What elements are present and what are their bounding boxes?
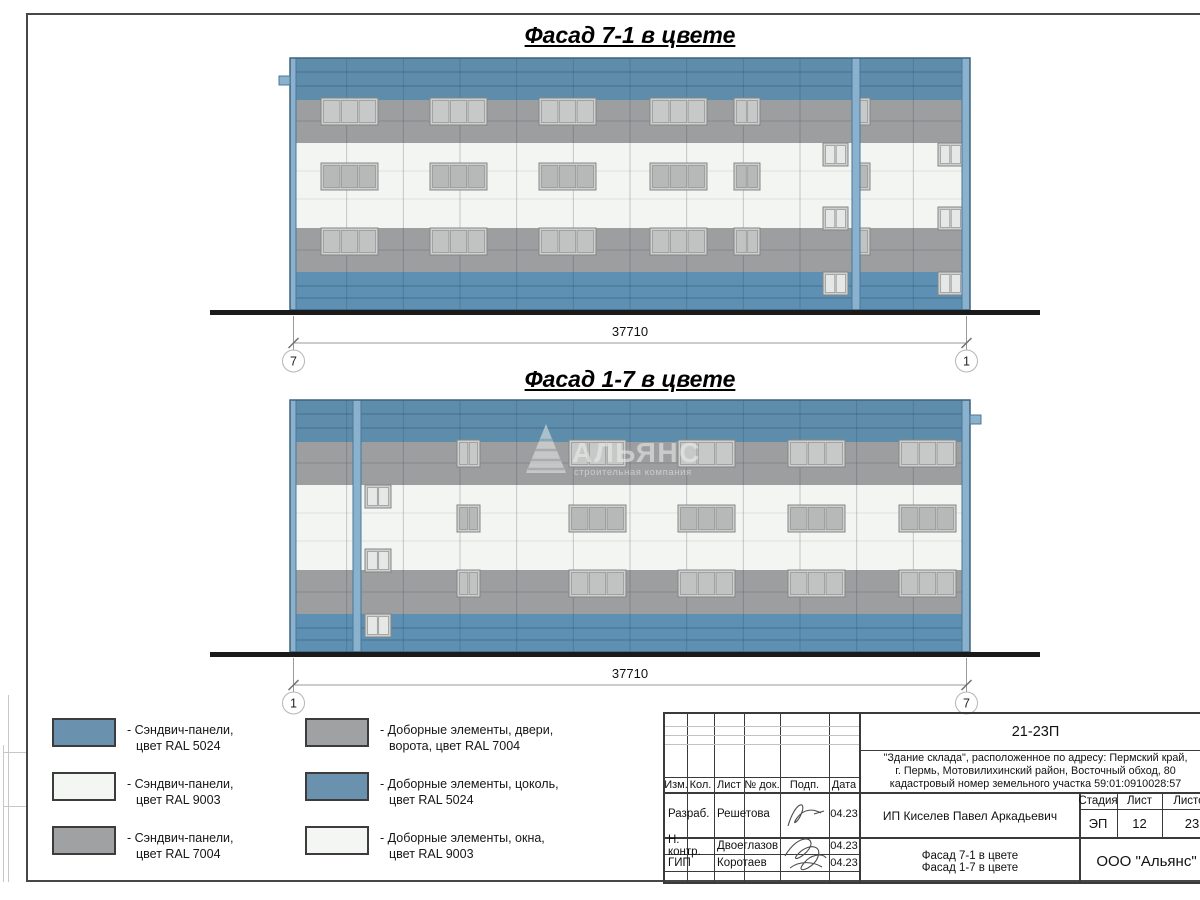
legend-label: - Сэндвич-панели,	[127, 830, 233, 846]
legend-label-line2: цвет RAL 9003	[127, 792, 233, 808]
dimension-label: 37710	[612, 324, 648, 339]
tb-col-doc: № док.	[744, 777, 780, 792]
legend-swatch-gray	[52, 826, 116, 855]
margin-line-horizontal-1	[3, 752, 26, 753]
tb-sheets-value: 23	[1162, 809, 1200, 837]
signature-gip	[785, 839, 826, 870]
tb-sheet-label: Лист	[1117, 792, 1162, 809]
legend-label-line2: цвет RAL 5024	[127, 738, 233, 754]
legend-label: - Сэндвич-панели,	[127, 722, 233, 738]
grid-axis-bubble: 7	[290, 355, 297, 369]
tb-doc-title-line2: Фасад 1-7 в цвете	[922, 862, 1018, 874]
legend-label-line2: цвет RAL 5024	[380, 792, 559, 808]
margin-line-horizontal-2	[3, 806, 26, 807]
tb-name-reshetova: Решетова	[717, 802, 779, 826]
tb-doc-number: 21-23П	[859, 714, 1200, 750]
legend-label: - Доборные элементы, окна,	[380, 830, 545, 846]
facade-elevation-svg: 3771071	[180, 55, 1060, 375]
tb-stage-value: ЭП	[1079, 809, 1117, 837]
title-block: Изм. Кол. Лист № док. Подп. Дата Разраб.…	[663, 712, 1200, 884]
grid-axis-bubble: 7	[963, 697, 970, 711]
tb-client: ИП Киселев Павел Аркадьевич	[861, 794, 1079, 837]
facade-7-1-drawing: 3771071	[180, 55, 1060, 375]
margin-line-vertical-inner	[8, 695, 9, 882]
legend-swatch-blue	[52, 718, 116, 747]
tb-date-2: 04.23	[829, 837, 859, 854]
signatures	[780, 792, 829, 884]
legend-swatch-gray-2	[305, 718, 369, 747]
tb-company: ООО "Альянс"	[1081, 839, 1200, 884]
tb-name-korotaev: Коротаев	[717, 854, 779, 871]
tb-role-nkontr: Н. контр.	[668, 837, 714, 854]
tb-role-razrab: Разраб.	[668, 802, 714, 826]
svg-text:строительная компания: строительная компания	[574, 467, 692, 478]
tb-col-data: Дата	[829, 777, 859, 792]
legend-label: - Сэндвич-панели,	[127, 776, 233, 792]
facade-elevation-svg: АЛЬЯНСстроительная компания3771017	[180, 397, 1060, 717]
legend-label: - Доборные элементы, цоколь,	[380, 776, 559, 792]
facade-7-1-title: Фасад 7-1 в цвете	[290, 22, 970, 49]
tb-date-3: 04.23	[829, 854, 859, 871]
tb-desc-line3: кадастровый номер земельного участка 59:…	[890, 778, 1181, 791]
legend-label: - Доборные элементы, двери,	[380, 722, 553, 738]
tb-desc-line2: г. Пермь, Мотовилихинский район, Восточн…	[895, 765, 1176, 778]
tb-sheets-label: Листов	[1162, 792, 1200, 809]
dimension-label: 37710	[612, 666, 648, 681]
legend-swatch-white	[52, 772, 116, 801]
tb-project-description: "Здание склада", расположенное по адресу…	[859, 750, 1200, 792]
tb-doc-title-line1: Фасад 7-1 в цвете	[922, 850, 1018, 862]
tb-col-podp: Подп.	[780, 777, 829, 792]
tb-doc-title: Фасад 7-1 в цвете Фасад 1-7 в цвете	[861, 839, 1079, 884]
tb-col-kol: Кол.	[687, 777, 714, 792]
legend-label-line2: ворота, цвет RAL 7004	[380, 738, 553, 754]
tb-sheet-value: 12	[1117, 809, 1162, 837]
tb-desc-line1: "Здание склада", расположенное по адресу…	[884, 752, 1188, 765]
grid-axis-bubble: 1	[963, 355, 970, 369]
grid-axis-bubble: 1	[290, 697, 297, 711]
legend-swatch-blue-2	[305, 772, 369, 801]
tb-name-dvoeglazov: Двоеглазов	[717, 837, 779, 854]
tb-date-1: 04.23	[829, 802, 859, 826]
legend-label-line2: цвет RAL 7004	[127, 846, 233, 862]
tb-stage-label: Стадия	[1079, 792, 1117, 809]
tb-col-list: Лист	[714, 777, 744, 792]
signature-razrab	[788, 805, 824, 826]
margin-line-vertical-outer	[3, 745, 4, 882]
svg-text:АЛЬЯНС: АЛЬЯНС	[572, 437, 701, 468]
legend-label-line2: цвет RAL 9003	[380, 846, 545, 862]
tb-role-gip: ГИП	[668, 854, 714, 871]
legend-swatch-white-2	[305, 826, 369, 855]
facade-1-7-drawing: АЛЬЯНСстроительная компания3771017	[180, 397, 1060, 717]
drawing-sheet: Фасад 7-1 в цвете Фасад 1-7 в цвете 3771…	[0, 0, 1200, 900]
tb-col-izm: Изм.	[665, 777, 687, 792]
